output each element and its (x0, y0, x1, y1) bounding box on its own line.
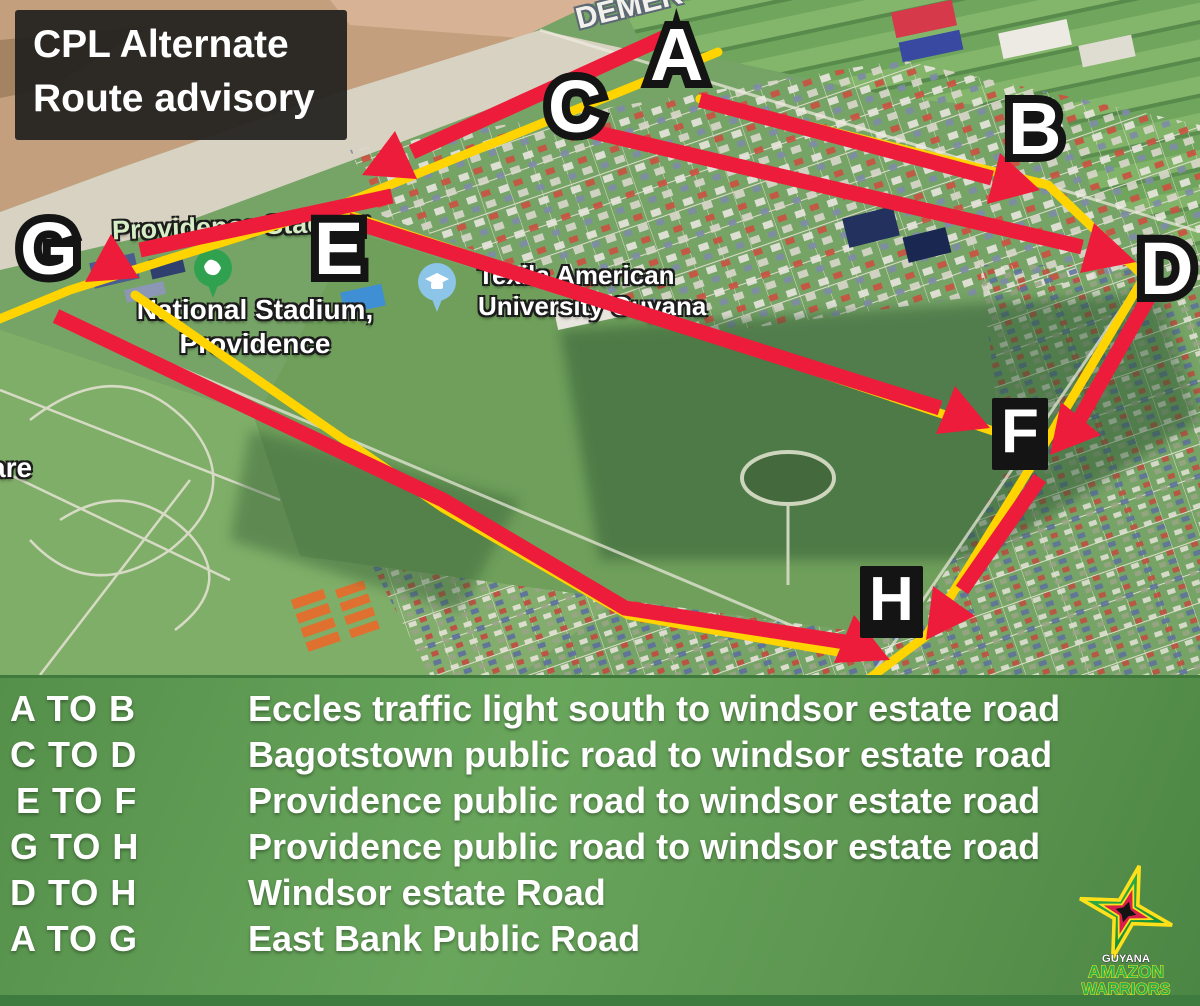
legend-row-a-b: A TO B Eccles traffic light south to win… (0, 688, 1200, 734)
logo-team-line1: AMAZON (1088, 962, 1164, 982)
route-description: Providence public road to windsor estate… (248, 826, 1040, 868)
legend-row-e-f: E TO F Providence public road to windsor… (0, 780, 1200, 826)
route-advisory-poster: DEMER Providence Stadium National Stadiu… (0, 0, 1200, 1006)
route-code: A TO G (10, 918, 248, 960)
amazon-warriors-logo: GUYANA AMAZON WARRIORS (1066, 864, 1186, 998)
route-code: E TO F (16, 780, 248, 822)
legend-row-c-d: C TO D Bagotstown public road to windsor… (0, 734, 1200, 780)
route-code: C TO D (10, 734, 248, 776)
marker-b: B B (1008, 92, 1061, 166)
stadium-pin-icon (194, 249, 232, 298)
route-code: G TO H (10, 826, 248, 868)
route-description: East Bank Public Road (248, 918, 640, 960)
marker-h: H H (860, 566, 923, 638)
legend-row-a-g: A TO G East Bank Public Road (0, 918, 1200, 964)
marker-c: C C (548, 70, 601, 144)
marker-g: G G (20, 212, 78, 286)
title-box: CPL Alternate Route advisory (15, 10, 347, 140)
route-description: Windsor estate Road (248, 872, 606, 914)
marker-a: A A (650, 18, 703, 92)
route-description: Providence public road to windsor estate… (248, 780, 1040, 822)
marker-f: F F (992, 398, 1048, 470)
satellite-map: DEMER Providence Stadium National Stadiu… (0, 0, 1200, 675)
route-code: A TO B (10, 688, 248, 730)
university-pin-icon (418, 263, 456, 312)
route-legend: A TO B Eccles traffic light south to win… (0, 675, 1200, 1006)
marker-e: E E (314, 212, 363, 286)
title-line-1: CPL Alternate (33, 18, 329, 72)
legend-row-d-h: D TO H Windsor estate Road (0, 872, 1200, 918)
logo-team-line2: WARRIORS (1082, 980, 1171, 998)
marker-d: D D (1140, 232, 1193, 306)
route-description: Eccles traffic light south to windsor es… (248, 688, 1060, 730)
title-line-2: Route advisory (33, 72, 329, 126)
route-code: D TO H (10, 872, 248, 914)
route-description: Bagotstown public road to windsor estate… (248, 734, 1052, 776)
legend-row-g-h: G TO H Providence public road to windsor… (0, 826, 1200, 872)
legend-rows: A TO B Eccles traffic light south to win… (0, 678, 1200, 964)
